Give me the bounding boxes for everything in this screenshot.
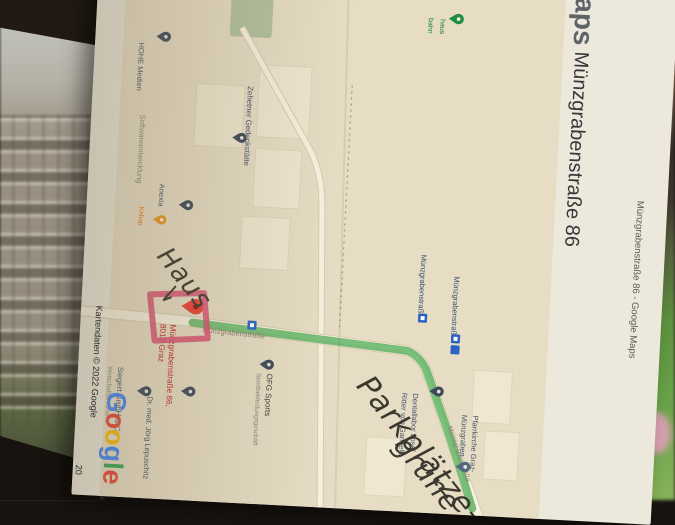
map: Münzgrabenstraße Münzgrabenstraße Münzgr… — [71, 0, 566, 525]
printed-page: Münzgrabenstraße 86 - Google Maps Maps M… — [71, 0, 675, 525]
page-content: Münzgrabenstraße 86 - Google Maps Maps M… — [71, 0, 675, 525]
photo-vignette — [71, 0, 566, 519]
maps-wordmark: Maps — [568, 0, 603, 46]
print-header: Münzgrabenstraße 86 - Google Maps — [626, 201, 645, 359]
page-title: Münzgrabenstraße 86 — [560, 51, 592, 248]
map-attribution-fragment: 20 — [73, 465, 84, 476]
